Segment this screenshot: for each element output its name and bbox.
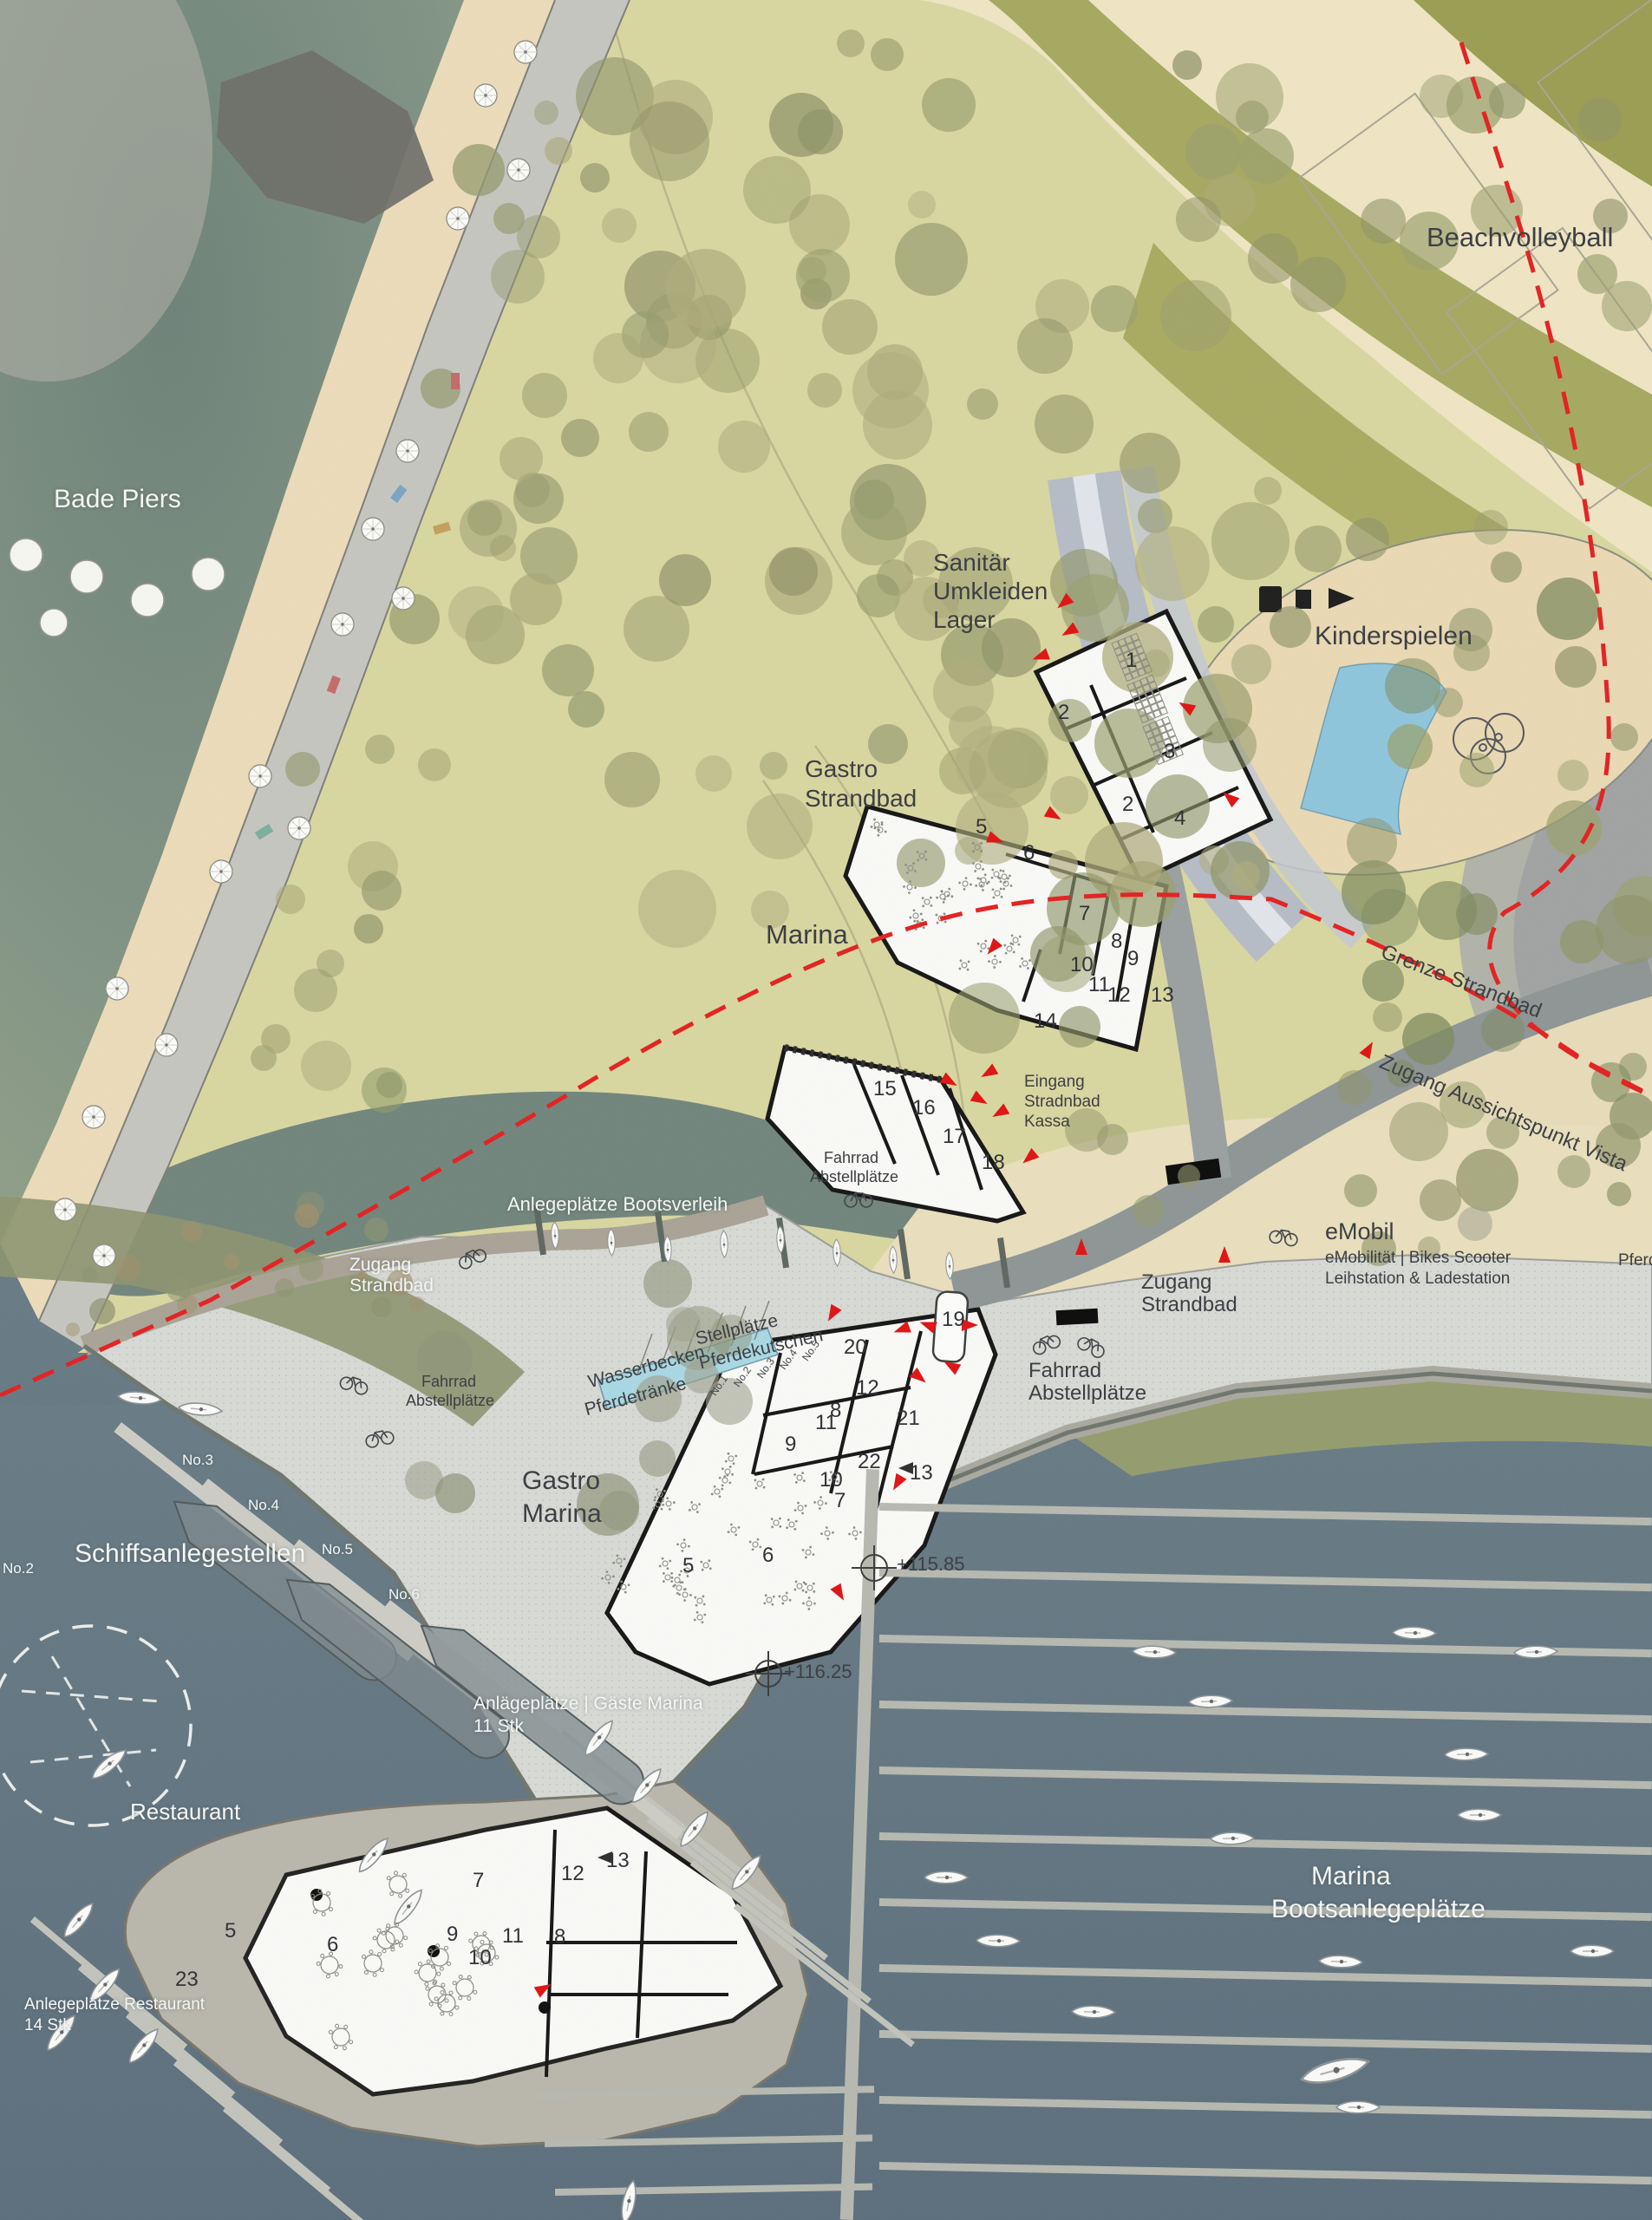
tree-icon — [871, 38, 904, 71]
tree-icon — [1557, 1155, 1590, 1188]
tree-icon — [796, 249, 850, 303]
tree-icon — [639, 1440, 676, 1477]
tree-icon — [1578, 98, 1622, 141]
tree-icon — [822, 299, 878, 355]
tree-icon — [635, 1375, 682, 1422]
tree-icon — [1456, 1149, 1518, 1211]
tree-icon — [1176, 197, 1221, 242]
tree-icon — [545, 137, 572, 165]
tree-icon — [453, 144, 505, 196]
tree-icon — [301, 1041, 351, 1091]
tree-icon — [362, 871, 402, 911]
umbrella-icon — [249, 765, 271, 787]
tree-icon — [1458, 1206, 1492, 1241]
tree-icon — [299, 1257, 323, 1281]
umbrella-icon — [507, 159, 530, 181]
tree-icon — [409, 1296, 425, 1312]
tree-icon — [561, 419, 599, 457]
tree-icon — [630, 101, 709, 181]
tree-icon — [89, 1298, 115, 1324]
tree-icon — [493, 203, 525, 234]
tree-icon — [1178, 1165, 1200, 1187]
tree-icon — [1059, 1006, 1100, 1048]
umbrella-icon — [392, 587, 415, 610]
umbrella-icon — [93, 1244, 115, 1267]
tree-icon — [1373, 1002, 1402, 1032]
tree-icon — [1546, 800, 1602, 856]
tree-icon — [1361, 889, 1419, 946]
tree-icon — [718, 421, 770, 473]
tree-icon — [894, 577, 958, 641]
tree-icon — [276, 885, 305, 914]
tree-icon — [760, 752, 787, 780]
tree-icon — [542, 644, 594, 696]
umbrella-icon — [288, 817, 310, 839]
tree-icon — [376, 1072, 402, 1098]
tree-icon — [1231, 644, 1271, 684]
tree-icon — [1295, 526, 1342, 572]
tree-icon — [949, 983, 1020, 1054]
tree-icon — [604, 752, 660, 807]
tree-icon — [1420, 75, 1463, 118]
tree-icon — [317, 950, 344, 977]
tree-icon — [1418, 1237, 1440, 1259]
tree-icon — [1047, 872, 1120, 945]
tree-icon — [82, 1267, 97, 1283]
tree-icon — [181, 1221, 202, 1242]
tree-icon — [837, 29, 865, 57]
tree-icon — [908, 191, 936, 219]
tree-icon — [1347, 818, 1397, 868]
tree-icon — [371, 1296, 392, 1317]
tree-icon — [643, 1259, 692, 1308]
tree-icon — [1211, 502, 1290, 580]
tree-icon — [769, 547, 818, 596]
tree-icon — [1388, 1060, 1415, 1087]
tree-icon — [1453, 635, 1490, 671]
tree-icon — [580, 163, 610, 193]
tree-icon — [491, 250, 545, 304]
tree-icon — [1555, 646, 1596, 688]
tree-icon — [666, 1307, 701, 1342]
umbrella-icon — [210, 860, 232, 883]
tree-icon — [364, 1218, 389, 1242]
tree-icon — [807, 373, 842, 408]
tree-icon — [1400, 212, 1459, 271]
tree-icon — [522, 373, 567, 418]
tree-icon — [1344, 1174, 1377, 1207]
tree-icon — [1385, 658, 1440, 714]
tree-icon — [114, 1255, 140, 1281]
tree-icon — [510, 573, 562, 625]
tree-icon — [1440, 1081, 1486, 1128]
tree-icon — [1120, 433, 1180, 493]
tree-icon — [1133, 1195, 1164, 1226]
tree-icon — [629, 412, 669, 452]
tree-icon — [684, 1359, 719, 1394]
tree-icon — [798, 109, 843, 154]
tree-icon — [1433, 688, 1463, 717]
umbrella-icon — [447, 207, 469, 230]
tree-icon — [1270, 606, 1311, 648]
tree-icon — [638, 870, 716, 948]
tree-icon — [1593, 199, 1628, 233]
umbrella-icon — [82, 1106, 105, 1128]
tree-icon — [460, 499, 517, 557]
tree-icon — [863, 390, 932, 460]
tree-icon — [1135, 526, 1210, 601]
tree-icon — [624, 596, 689, 662]
umbrella-icon — [514, 41, 537, 63]
site-plan-canvas — [0, 0, 1652, 2220]
tree-icon — [1607, 1182, 1631, 1206]
tree-icon — [695, 755, 732, 792]
tree-icon — [365, 735, 395, 764]
tree-icon — [1481, 1009, 1525, 1052]
tree-icon — [1489, 82, 1525, 119]
tree-icon — [1420, 1179, 1461, 1221]
tree-icon — [1290, 257, 1346, 312]
tree-icon — [710, 1315, 752, 1356]
tree-icon — [922, 78, 976, 132]
tree-icon — [513, 473, 564, 524]
umbrella-icon — [155, 1034, 178, 1056]
tree-icon — [356, 1271, 369, 1283]
tree-icon — [599, 1491, 639, 1531]
tree-icon — [1203, 718, 1257, 772]
tree-icon — [1557, 760, 1589, 791]
tree-icon — [285, 752, 320, 787]
tree-icon — [1486, 1116, 1519, 1149]
tree-icon — [275, 1278, 294, 1297]
tree-icon — [1577, 254, 1617, 294]
tree-icon — [1491, 552, 1522, 583]
tree-icon — [1050, 776, 1088, 814]
tree-icon — [1402, 1013, 1454, 1065]
tree-icon — [1048, 699, 1092, 742]
tree-icon — [895, 223, 968, 296]
tree-icon — [1596, 1123, 1641, 1168]
tree-icon — [1456, 893, 1498, 935]
tree-icon — [295, 1204, 319, 1228]
tree-icon — [982, 618, 1041, 677]
tree-icon — [354, 914, 383, 943]
umbrella-icon — [331, 613, 354, 636]
tree-icon — [967, 388, 998, 420]
tree-icon — [659, 554, 711, 606]
tree-icon — [956, 792, 1028, 865]
umbrella-icon — [474, 84, 497, 107]
tree-icon — [897, 839, 945, 887]
tree-icon — [1091, 285, 1138, 332]
tree-icon — [418, 748, 451, 781]
tree-icon — [417, 1331, 473, 1387]
tree-icon — [1362, 960, 1404, 1002]
tree-icon — [534, 101, 558, 125]
tree-icon — [1346, 518, 1389, 561]
tree-icon — [602, 208, 637, 243]
tree-icon — [261, 1024, 291, 1054]
tree-icon — [868, 724, 908, 764]
tree-icon — [167, 1277, 191, 1302]
tree-icon — [751, 891, 789, 929]
tree-icon — [568, 691, 604, 728]
tree-icon — [66, 1322, 80, 1336]
umbrella-icon — [362, 518, 384, 540]
tree-icon — [1160, 280, 1231, 351]
tree-icon — [841, 499, 907, 565]
tree-icon — [1361, 199, 1406, 244]
tree-icon — [1471, 185, 1523, 237]
tree-icon — [1254, 477, 1282, 505]
tree-icon — [1185, 124, 1241, 180]
umbrella-icon — [396, 440, 419, 462]
tree-icon — [593, 333, 643, 383]
umbrella-icon — [106, 977, 128, 1000]
tree-icon — [1017, 318, 1073, 374]
tree-icon — [956, 726, 1028, 799]
tree-icon — [1337, 1070, 1372, 1105]
tree-icon — [387, 1270, 413, 1296]
beach-towel — [451, 373, 460, 389]
tree-icon — [1388, 724, 1433, 769]
tree-icon — [1198, 606, 1234, 643]
tree-icon — [747, 793, 813, 859]
tree-icon — [1146, 774, 1210, 839]
tree-icon — [1361, 1231, 1396, 1266]
tree-icon — [1172, 50, 1202, 80]
tree-icon — [1216, 63, 1283, 131]
tree-icon — [500, 437, 543, 480]
info-board — [1056, 1309, 1099, 1325]
tree-icon — [435, 1473, 475, 1513]
tree-icon — [1389, 1102, 1448, 1161]
tree-icon — [1238, 128, 1294, 184]
umbrella-icon — [54, 1198, 76, 1221]
tree-icon — [1035, 395, 1094, 454]
tree-icon — [448, 586, 504, 642]
tree-icon — [1610, 723, 1638, 751]
tree-icon — [1537, 578, 1599, 640]
tree-icon — [1248, 233, 1298, 284]
tree-icon — [789, 194, 850, 255]
tree-icon — [224, 1254, 239, 1270]
tree-icon — [1097, 1124, 1128, 1155]
site-plan: Bade PiersBeachvolleyballKinderspielenSa… — [0, 0, 1652, 2220]
tree-icon — [1459, 753, 1494, 787]
tree-icon — [1473, 510, 1508, 545]
tree-icon — [1232, 861, 1260, 889]
